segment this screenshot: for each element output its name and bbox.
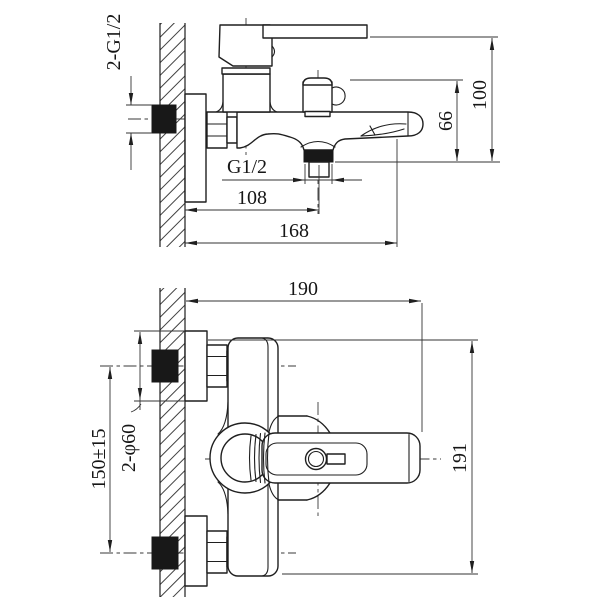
drawing-canvas: 2-G1/2 G1/2 108 168: [0, 0, 600, 600]
cartridge-column: [223, 74, 270, 112]
diverter-base: [305, 112, 330, 117]
shower-outlet-thread-band: [304, 150, 333, 162]
upper-escutcheon-plate: [185, 331, 207, 401]
lower-threaded-block: [152, 537, 178, 569]
hex-nut-side: [207, 112, 227, 148]
wall-section-side: [160, 23, 185, 247]
bushing-side: [227, 117, 237, 143]
dim-label-body-overall: 191: [449, 443, 471, 473]
dim-label-wall-connections: 2-G1/2: [103, 14, 125, 71]
faucet-technical-drawing: 2-G1/2 G1/2 108 168: [0, 0, 600, 600]
handle-lever-bar: [263, 25, 367, 38]
upper-threaded-block: [152, 350, 178, 382]
escutcheon-leader: [131, 404, 141, 412]
side-view: 2-G1/2 G1/2 108 168: [103, 14, 500, 247]
dim-label-handle-height: 100: [469, 80, 491, 110]
dim-label-wall-to-outlet: 108: [237, 187, 267, 209]
upper-hex-nut: [207, 345, 227, 387]
lever-slot: [327, 454, 345, 464]
lower-hex-nut: [207, 531, 227, 573]
dim-label-wall-to-spout-end: 168: [279, 220, 309, 242]
dim-label-escutcheon-diameter: 2-φ60: [118, 424, 140, 472]
dim-label-outlet-thread: G1/2: [227, 156, 267, 178]
dim-label-inlet-spacing: 150±15: [88, 429, 110, 490]
lower-escutcheon-plate: [185, 516, 207, 586]
diverter-hook: [332, 87, 345, 105]
dim-label-overall-depth: 190: [288, 278, 318, 300]
plan-view: 190 191 150±15 2-φ60: [88, 278, 478, 597]
plan-view-dimensions: 190 191 150±15 2-φ60: [88, 278, 478, 574]
escutcheon-plate-side: [185, 94, 206, 202]
threaded-inlet-block: [152, 105, 176, 133]
dim-label-diverter-height: 66: [435, 111, 457, 131]
diverter-knob-side: [303, 78, 345, 117]
handle-skirt: [222, 68, 270, 74]
